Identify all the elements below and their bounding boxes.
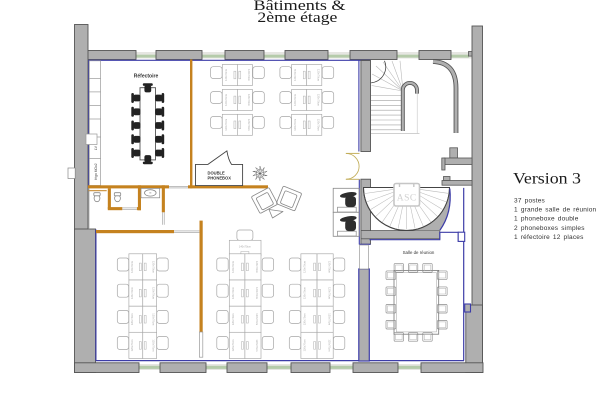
- svg-text:120x70cm: 120x70cm: [231, 261, 235, 273]
- svg-text:120x70cm: 120x70cm: [130, 313, 134, 325]
- svg-text:120x70cm: 120x70cm: [303, 287, 307, 299]
- svg-text:120x70cm: 120x70cm: [224, 119, 228, 131]
- svg-text:Version 3: Version 3: [513, 170, 581, 187]
- svg-text:120x70cm: 120x70cm: [255, 339, 259, 351]
- svg-text:120x70cm: 120x70cm: [327, 313, 331, 325]
- svg-text:120x70cm: 120x70cm: [303, 339, 307, 351]
- svg-text:frigo MOx2: frigo MOx2: [94, 163, 98, 179]
- svg-text:120x70cm: 120x70cm: [255, 313, 259, 325]
- svg-text:120x70cm: 120x70cm: [247, 119, 251, 131]
- svg-text:120x70cm: 120x70cm: [293, 119, 297, 131]
- svg-text:Salle de réunion: Salle de réunion: [403, 250, 435, 255]
- svg-text:120x70cm: 120x70cm: [130, 287, 134, 299]
- svg-text:120x70cm: 120x70cm: [255, 287, 259, 299]
- svg-text:120x70cm: 120x70cm: [303, 313, 307, 325]
- svg-text:140x70cm: 140x70cm: [239, 245, 251, 249]
- svg-text:ASC: ASC: [397, 194, 417, 204]
- svg-text:120x70cm: 120x70cm: [151, 261, 155, 273]
- svg-text:PHONEBOX: PHONEBOX: [208, 176, 232, 181]
- svg-text:120x70cm: 120x70cm: [130, 339, 134, 351]
- svg-text:120x70cm: 120x70cm: [231, 287, 235, 299]
- svg-text:Réfectoire: Réfectoire: [134, 73, 159, 79]
- svg-text:120x70cm: 120x70cm: [255, 261, 259, 273]
- svg-text:120x70cm: 120x70cm: [224, 69, 228, 81]
- svg-text:120x70cm: 120x70cm: [231, 313, 235, 325]
- svg-text:120x70cm: 120x70cm: [316, 69, 320, 81]
- svg-text:120x70cm: 120x70cm: [303, 261, 307, 273]
- svg-text:120x70cm: 120x70cm: [327, 287, 331, 299]
- svg-text:120x70cm: 120x70cm: [327, 339, 331, 351]
- svg-text:2 phoneboxes simples: 2 phoneboxes simples: [514, 225, 585, 232]
- svg-text:LV: LV: [94, 145, 98, 150]
- svg-text:120x70cm: 120x70cm: [231, 339, 235, 351]
- svg-text:120x70cm: 120x70cm: [151, 339, 155, 351]
- svg-text:120x70cm: 120x70cm: [130, 261, 134, 273]
- svg-text:120x70cm: 120x70cm: [151, 313, 155, 325]
- svg-text:120x70cm: 120x70cm: [293, 69, 297, 81]
- svg-text:120x70cm: 120x70cm: [327, 261, 331, 273]
- svg-text:120x70cm: 120x70cm: [151, 287, 155, 299]
- svg-text:120x70cm: 120x70cm: [224, 94, 228, 106]
- svg-text:37 postes: 37 postes: [514, 197, 546, 204]
- svg-text:1 phoneboxe double: 1 phoneboxe double: [514, 216, 579, 223]
- svg-text:120x70cm: 120x70cm: [247, 69, 251, 81]
- svg-text:2ème étage: 2ème étage: [257, 9, 337, 26]
- svg-text:1 grande salle de réunion: 1 grande salle de réunion: [514, 207, 597, 214]
- svg-text:120x70cm: 120x70cm: [316, 94, 320, 106]
- svg-text:120x70cm: 120x70cm: [247, 94, 251, 106]
- svg-text:120x70cm: 120x70cm: [316, 119, 320, 131]
- svg-text:120x70cm: 120x70cm: [293, 94, 297, 106]
- svg-text:1 réfectoire 12 places: 1 réfectoire 12 places: [514, 234, 584, 241]
